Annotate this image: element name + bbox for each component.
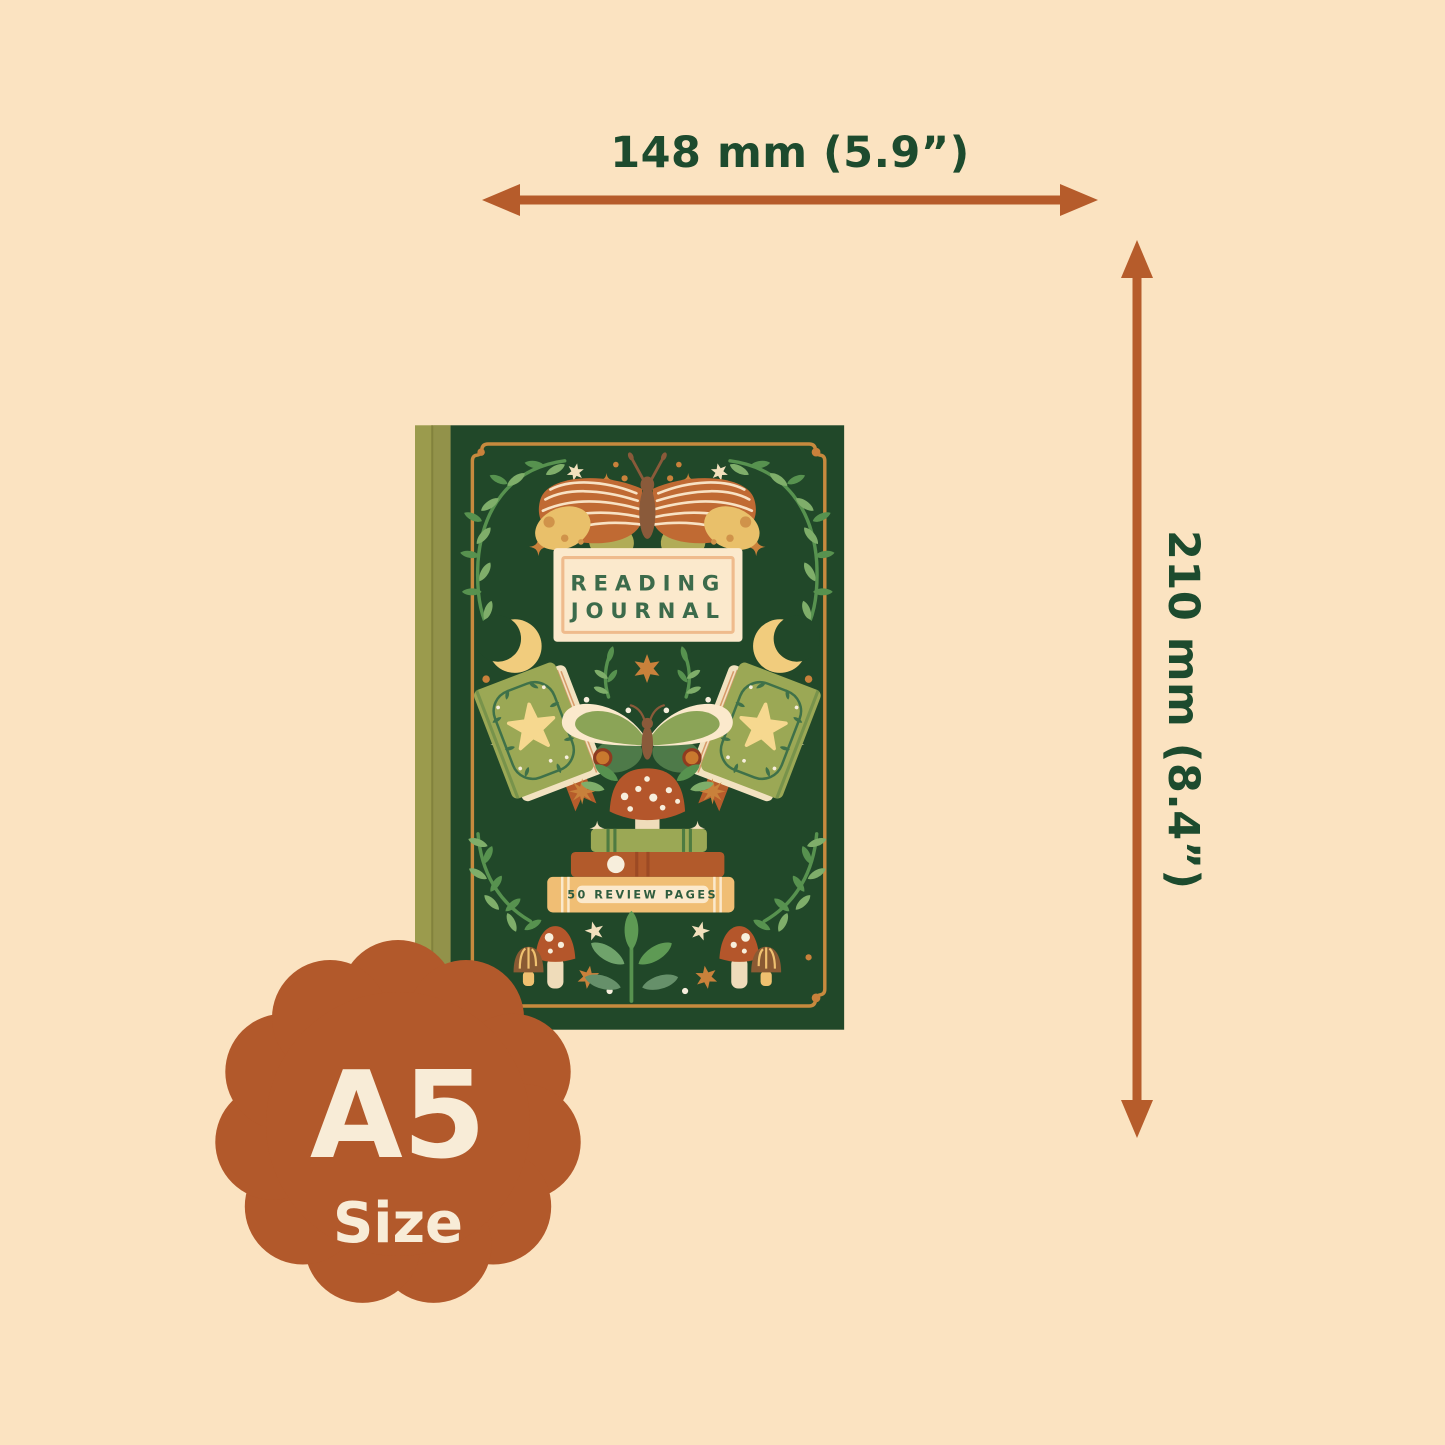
badge-size-code: A5 — [310, 1047, 486, 1186]
stack-book-bottom: 50 REVIEW PAGES — [547, 877, 734, 913]
title-box: READING JOURNAL — [553, 548, 742, 642]
product-size-diagram: 148 mm (5.9”) 210 mm (8.4”) — [0, 0, 1445, 1445]
cover-title-line1: READING — [570, 571, 726, 596]
stack-book-middle — [571, 852, 724, 877]
width-dimension-arrow-icon — [478, 178, 1102, 222]
review-pages-label: 50 REVIEW PAGES — [567, 889, 718, 902]
height-dimension-arrow-icon — [1112, 238, 1162, 1140]
badge-size-word: Size — [333, 1191, 463, 1256]
width-dimension-label: 148 mm (5.9”) — [450, 128, 1130, 178]
cover-title-line2: JOURNAL — [569, 598, 726, 623]
height-dimension-label: 210 mm (8.4”) — [1158, 530, 1208, 950]
stack-book-top — [591, 829, 707, 852]
size-badge: A5 Size — [186, 912, 610, 1336]
